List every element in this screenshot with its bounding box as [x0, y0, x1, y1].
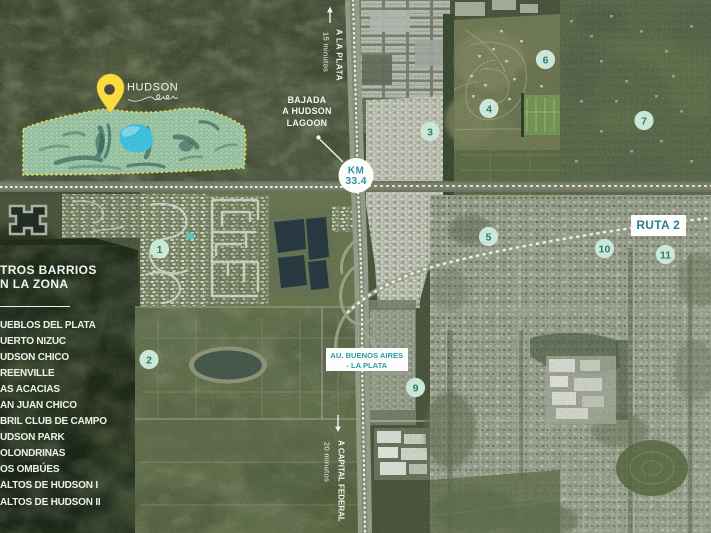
svg-text:6: 6 — [543, 55, 549, 67]
svg-text:9: 9 — [413, 383, 419, 395]
svg-text:11: 11 — [660, 250, 671, 262]
svg-text:A LA PLATA: A LA PLATA — [335, 29, 345, 81]
svg-text:HUDSON: HUDSON — [127, 82, 178, 94]
svg-text:4: 4 — [486, 104, 492, 116]
svg-text:5: 5 — [486, 232, 492, 244]
svg-text:A CAPITAL FEDERAL: A CAPITAL FEDERAL — [337, 440, 346, 522]
svg-text:20 minutos: 20 minutos — [323, 442, 332, 482]
svg-text:2: 2 — [146, 355, 152, 367]
svg-text:1: 1 — [157, 244, 163, 256]
svg-text:15 minutos: 15 minutos — [322, 32, 331, 72]
svg-text:3: 3 — [427, 127, 433, 139]
svg-text:33.4: 33.4 — [345, 175, 366, 187]
svg-text:7: 7 — [641, 116, 647, 128]
svg-text:10: 10 — [599, 244, 611, 256]
